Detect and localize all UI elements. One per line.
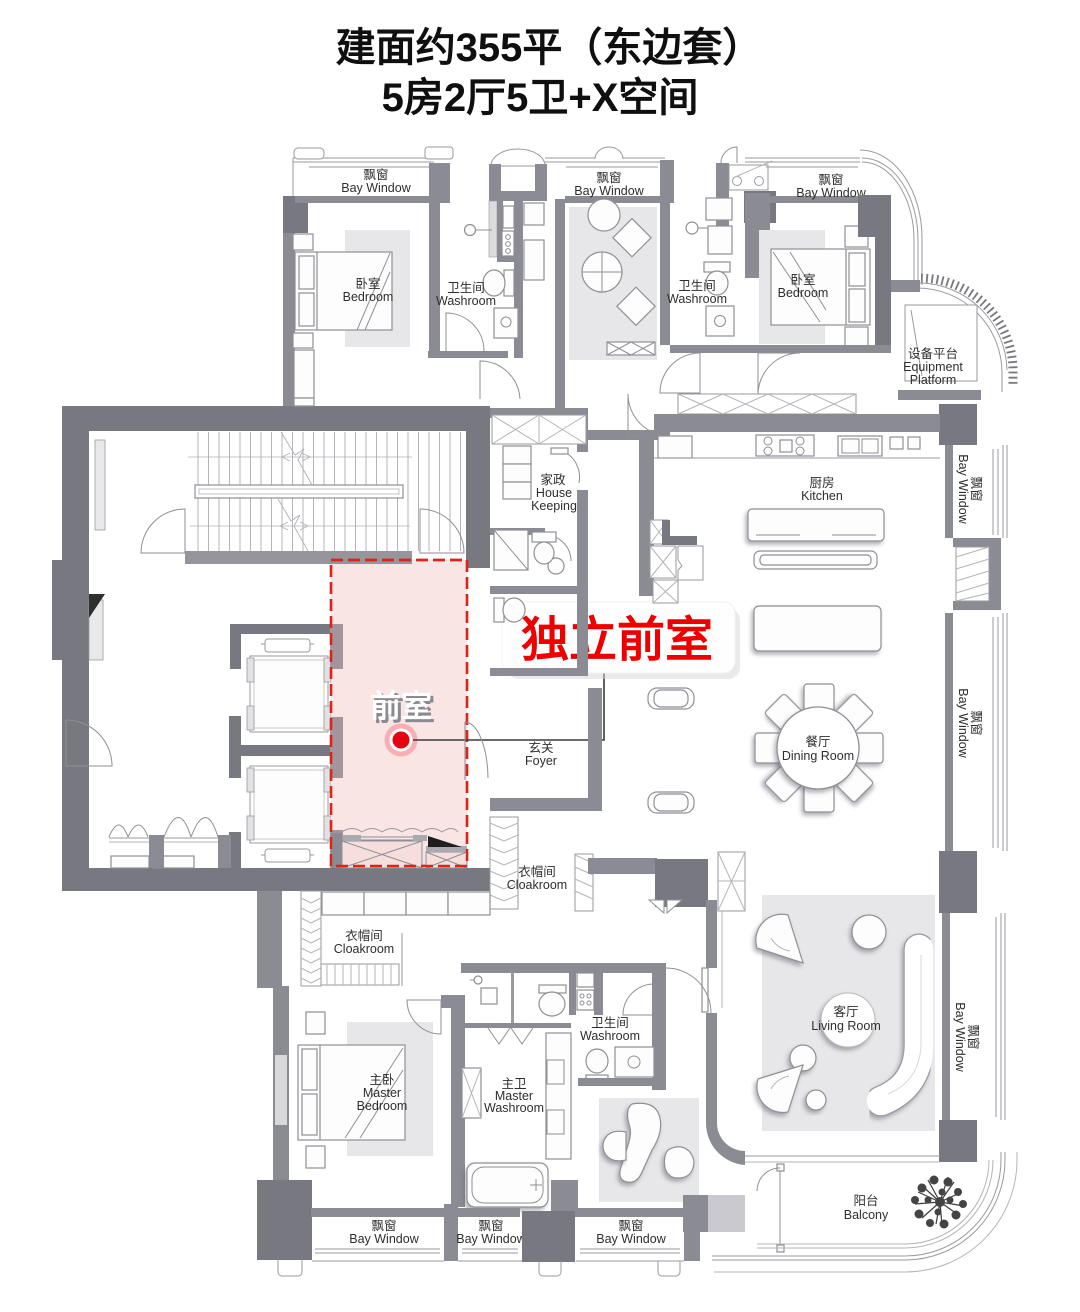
svg-text:Bay Window: Bay Window [956,688,970,758]
svg-text:Bay Window: Bay Window [574,184,644,198]
svg-text:Bedroom: Bedroom [357,1099,408,1113]
svg-text:建面约355平（东边套）: 建面约355平（东边套） [336,26,763,70]
svg-text:卫生间: 卫生间 [591,1016,629,1030]
svg-text:Bay Window: Bay Window [956,454,970,524]
svg-text:飘窗: 飘窗 [818,173,843,187]
svg-text:衣帽间: 衣帽间 [518,864,556,879]
svg-text:飘窗: 飘窗 [969,710,983,735]
svg-text:Bay Window: Bay Window [349,1232,419,1246]
svg-text:客厅: 客厅 [833,1004,858,1019]
svg-text:飘窗: 飘窗 [596,171,621,185]
svg-text:House: House [536,486,572,500]
svg-text:飘窗: 飘窗 [371,1219,396,1233]
svg-text:Bay Window: Bay Window [456,1232,526,1246]
svg-text:Platform: Platform [910,373,957,387]
svg-text:卫生间: 卫生间 [447,281,485,295]
svg-text:家政: 家政 [540,472,566,487]
svg-text:餐厅: 餐厅 [805,734,830,749]
svg-text:Washroom: Washroom [667,292,727,306]
svg-text:衣帽间: 衣帽间 [345,928,383,943]
svg-text:主卧: 主卧 [369,1073,394,1087]
svg-text:厨房: 厨房 [809,475,834,490]
svg-text:Bedroom: Bedroom [778,286,829,300]
svg-text:Living Room: Living Room [811,1019,880,1033]
svg-text:独立前室: 独立前室 [521,614,713,667]
svg-text:Bay Window: Bay Window [953,1002,967,1072]
svg-text:飘窗: 飘窗 [969,476,983,501]
svg-text:Balcony: Balcony [844,1208,889,1222]
svg-text:设备平台: 设备平台 [908,346,958,361]
svg-text:Kitchen: Kitchen [801,489,843,503]
svg-text:阳台: 阳台 [853,1193,878,1208]
svg-text:Equipment: Equipment [903,360,963,374]
svg-text:卫生间: 卫生间 [678,279,716,293]
svg-text:Washroom: Washroom [436,294,496,308]
svg-text:Washroom: Washroom [484,1101,544,1115]
svg-text:Dining Room: Dining Room [782,749,854,763]
svg-text:Bay Window: Bay Window [796,186,866,200]
svg-text:飘窗: 飘窗 [618,1219,643,1233]
svg-text:Keeping: Keeping [531,499,577,513]
svg-text:Bedroom: Bedroom [343,290,394,304]
svg-text:前室: 前室 [370,689,432,724]
svg-text:玄关: 玄关 [528,740,553,755]
svg-text:飘窗: 飘窗 [363,168,388,182]
svg-text:Master: Master [363,1086,401,1100]
svg-text:飘窗: 飘窗 [478,1219,503,1233]
svg-text:5房2厅5卫+X空间: 5房2厅5卫+X空间 [382,76,699,120]
svg-text:Foyer: Foyer [525,754,557,768]
svg-text:Washroom: Washroom [580,1029,640,1043]
svg-text:Bay Window: Bay Window [596,1232,666,1246]
svg-text:Cloakroom: Cloakroom [507,878,567,892]
svg-text:卧室: 卧室 [790,272,815,287]
svg-text:Cloakroom: Cloakroom [334,942,394,956]
svg-text:卧室: 卧室 [355,276,380,291]
svg-text:飘窗: 飘窗 [966,1024,980,1049]
svg-text:Bay Window: Bay Window [341,181,411,195]
